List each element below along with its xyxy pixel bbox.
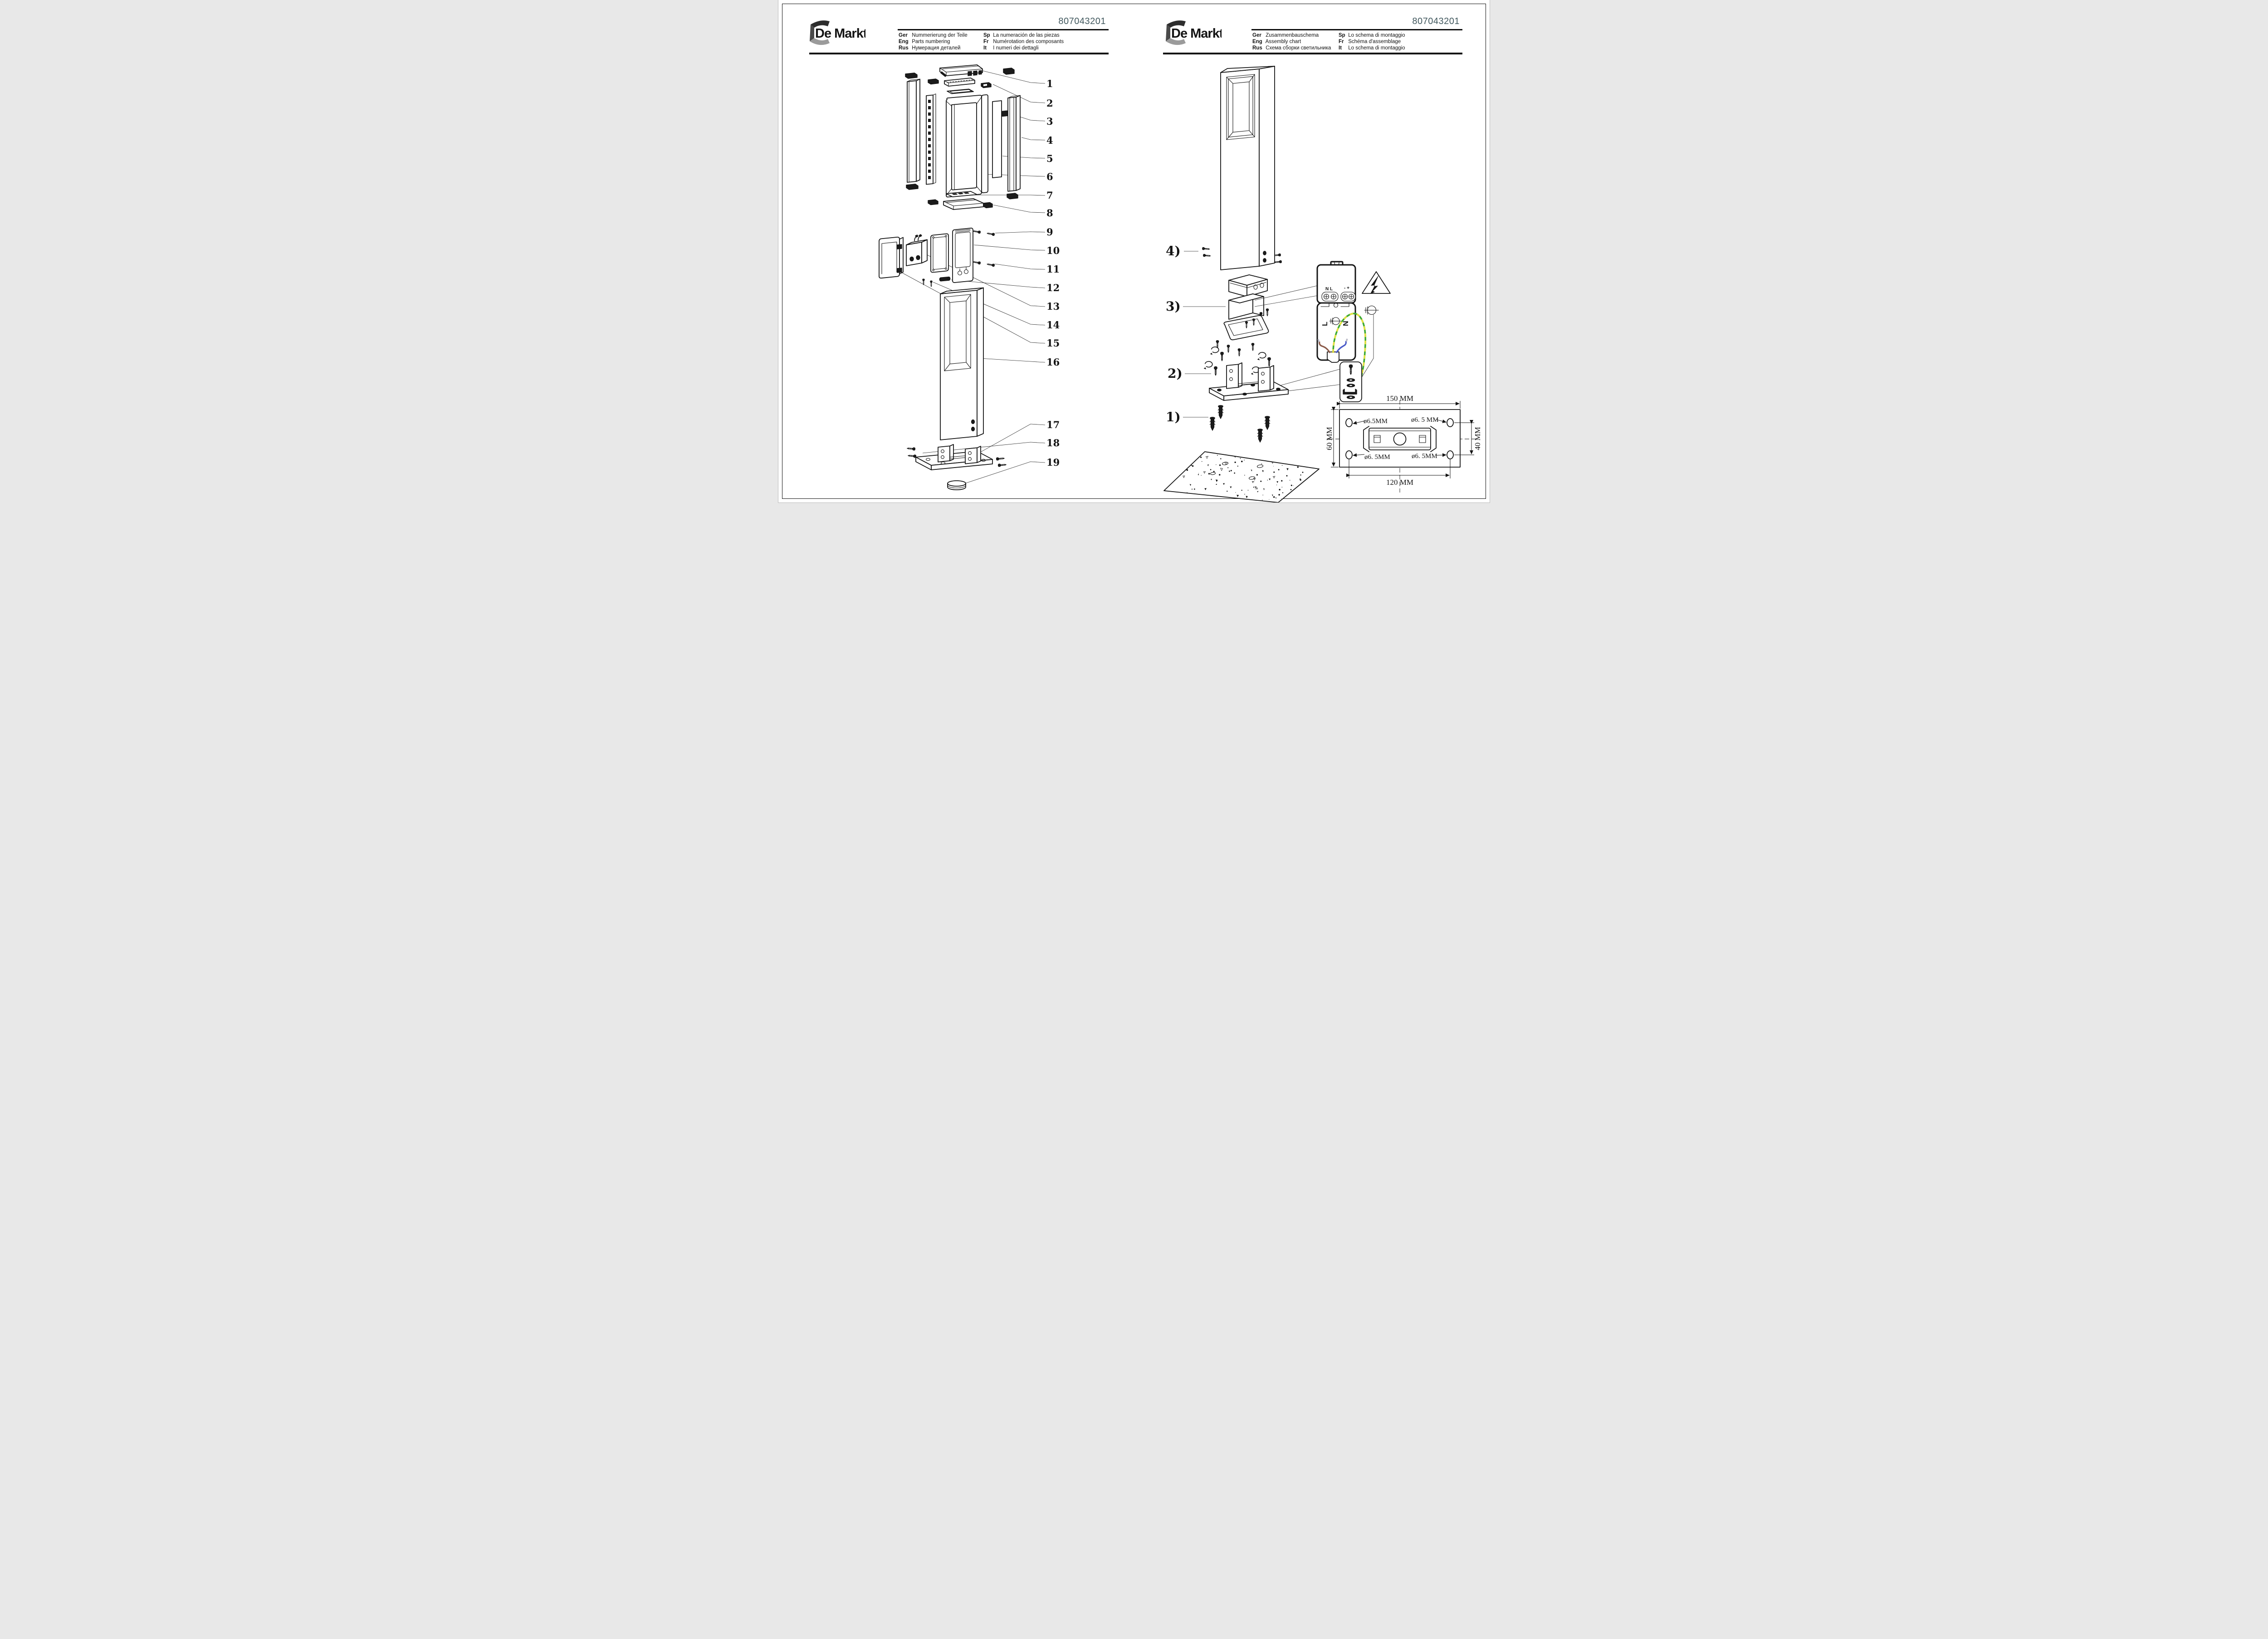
part-number: 4 — [1046, 135, 1053, 146]
dim-hole-spacing-h: 120 MM — [1386, 478, 1413, 487]
part-number: 15 — [1046, 337, 1060, 349]
parts-numbering-diagram: 1 2 3 4 5 6 7 8 9 10 11 12 13 14 15 16 1… — [879, 65, 1060, 490]
part-number: 7 — [1046, 190, 1053, 201]
terminal-label-neutral: N — [1342, 321, 1350, 326]
part-screws-14 — [923, 279, 933, 287]
part-screws-9 — [973, 230, 995, 236]
part-number: 14 — [1046, 319, 1060, 331]
part-side-panel-left — [905, 73, 920, 190]
step3-driver-assembly — [1216, 275, 1317, 356]
part-number: 5 — [1046, 153, 1053, 164]
dim-hole-label: ø6. 5MM — [1412, 453, 1437, 460]
dim-hole-spacing-v: 40 MM — [1473, 427, 1482, 450]
part-diffuser — [992, 101, 1002, 178]
terminal-label-input: N L — [1325, 287, 1333, 292]
part-number-labels: 1 2 3 4 5 6 7 8 9 10 11 12 13 14 15 16 1… — [1046, 78, 1060, 468]
dim-hole-label: ø6.5MM — [1364, 418, 1388, 425]
saddle-clamp-detail — [1266, 362, 1362, 402]
part-end-cap-top — [1003, 68, 1014, 74]
part-number: 12 — [1046, 282, 1060, 293]
part-glass-strip — [947, 89, 973, 94]
part-number: 8 — [1046, 207, 1053, 219]
part-number: 11 — [1046, 263, 1060, 275]
part-number: 2 — [1046, 98, 1053, 109]
part-gasket-frame — [931, 234, 948, 272]
part-number: 13 — [1046, 301, 1060, 312]
dim-height: 60 MM — [1325, 427, 1334, 450]
mounting-plate-dimension-drawing: 150 MM 60 MM 40 MM 120 MM ø6.5MM ø6. 5 M… — [1325, 394, 1482, 493]
instruction-sheet: De Markt De Markt 807043201 807043201 Ge… — [778, 0, 1490, 502]
dim-hole-label: ø6. 5MM — [1364, 454, 1390, 461]
part-number: 3 — [1046, 116, 1053, 127]
step1-anchors — [1210, 405, 1270, 442]
terminal-label-line: L — [1321, 322, 1329, 326]
part-gasket-ring — [948, 481, 966, 490]
terminal-label-output: - + — [1344, 286, 1349, 291]
part-pole — [940, 288, 983, 440]
cord-clamp — [1327, 352, 1339, 362]
earth-screw-callout — [1362, 306, 1378, 378]
part-base-plate — [916, 444, 992, 470]
part-back-door — [953, 228, 973, 283]
part-number: 6 — [1046, 171, 1053, 182]
part-number: 18 — [1046, 437, 1060, 449]
step-label-1: 1) — [1166, 410, 1181, 424]
assembled-pole — [1221, 66, 1275, 270]
step-label-3: 3) — [1166, 299, 1181, 314]
dim-hole-label: ø6. 5 MM — [1411, 416, 1438, 424]
part-number: 10 — [1046, 245, 1060, 256]
part-top-cap — [940, 65, 982, 77]
part-screws-11 — [973, 261, 995, 267]
part-driver-box — [906, 234, 927, 266]
part-cover-door — [879, 237, 903, 278]
step-label-2: 2) — [1168, 366, 1183, 381]
concrete-pad — [1164, 452, 1319, 502]
step-label-4: 4) — [1166, 244, 1181, 259]
assembly-chart-diagram: 4) 3) 2) 1) — [1164, 66, 1482, 502]
part-number: 9 — [1046, 226, 1053, 238]
part-number: 16 — [1046, 356, 1060, 368]
part-number: 19 — [1046, 457, 1060, 468]
part-number: 1 — [1046, 78, 1053, 89]
high-voltage-warning-icon — [1362, 272, 1390, 294]
dim-width: 150 MM — [1386, 394, 1413, 403]
part-number: 17 — [1046, 419, 1060, 430]
part-main-frame — [946, 95, 982, 197]
diagram-canvas: 1 2 3 4 5 6 7 8 9 10 11 12 13 14 15 16 1… — [778, 0, 1490, 502]
part-side-panel-right — [1007, 96, 1020, 199]
part-led-bar-bottom — [928, 199, 992, 210]
step2-base-assembly — [1209, 363, 1288, 400]
part-led-strip — [926, 94, 936, 185]
part-standoff — [939, 277, 950, 281]
part-rear-housing — [982, 95, 988, 193]
